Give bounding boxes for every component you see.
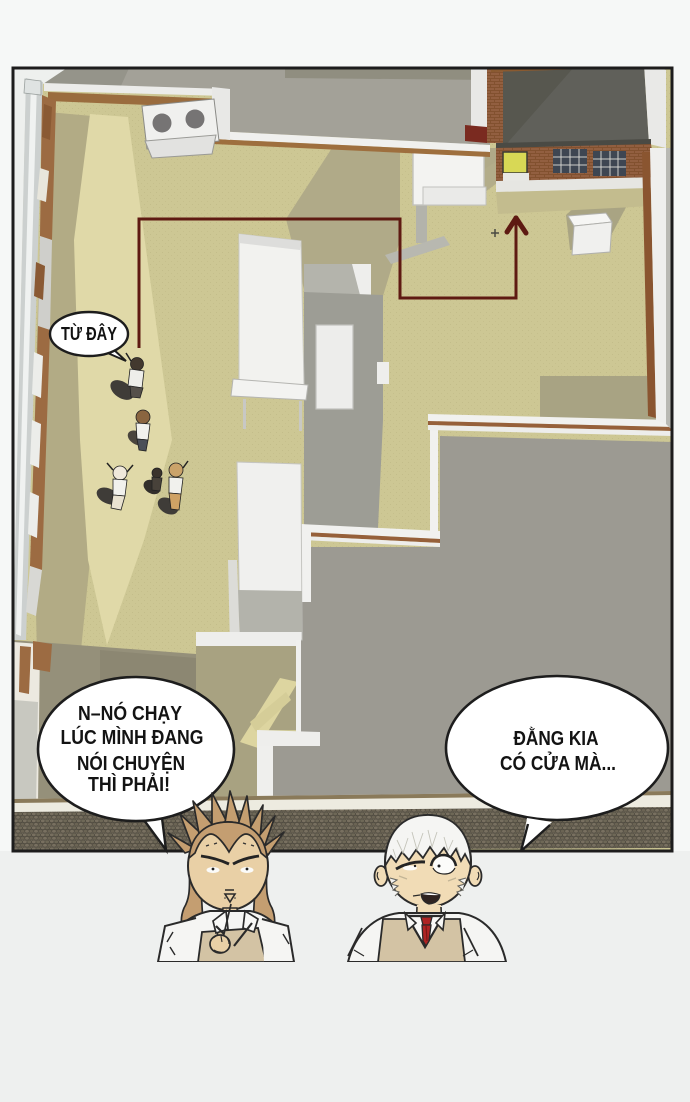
svg-text:N–NÓ CHẠY: N–NÓ CHẠY: [78, 701, 182, 725]
svg-text:LÚC MÌNH ĐANG: LÚC MÌNH ĐANG: [61, 725, 204, 749]
svg-text:TỪ ĐÂY: TỪ ĐÂY: [61, 323, 117, 344]
svg-text:NÓI CHUYỆN: NÓI CHUYỆN: [77, 751, 185, 775]
svg-text:CÓ CỬA MÀ...: CÓ CỬA MÀ...: [500, 751, 616, 775]
svg-text:ĐẰNG KIA: ĐẰNG KIA: [514, 726, 599, 750]
svg-text:THÌ PHẢI!: THÌ PHẢI!: [88, 773, 170, 796]
